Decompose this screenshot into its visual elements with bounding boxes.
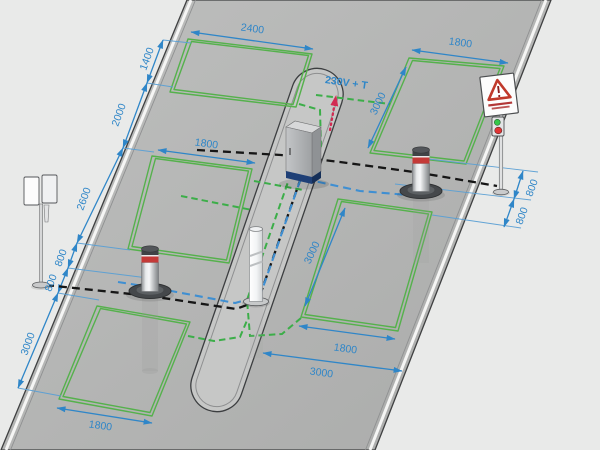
bollard-right-reflector bbox=[413, 156, 430, 158]
bollard-left-stripe bbox=[142, 257, 159, 263]
bollard-left-underground-ghost bbox=[142, 291, 158, 371]
guide-post-ghost bbox=[250, 303, 263, 358]
bollard-installation-diagram: 1400 2000 2600 800 800 3000 2400 1800 18… bbox=[0, 0, 600, 450]
bollard-left-cap bbox=[142, 246, 159, 252]
cabinet-side-face bbox=[312, 127, 321, 178]
signal-green-light bbox=[494, 119, 500, 125]
bollard-right-cap bbox=[413, 147, 430, 153]
sign-base bbox=[494, 189, 509, 195]
control-post-bracket bbox=[44, 205, 49, 222]
bollard-left-reflector bbox=[142, 255, 159, 257]
guide-post-top bbox=[250, 227, 263, 232]
control-post-pole bbox=[40, 204, 43, 285]
signal-red-light bbox=[495, 127, 502, 134]
bollard-left-body bbox=[142, 263, 159, 292]
bollard-left-ghost-bottom bbox=[142, 368, 158, 374]
bollard-right-body bbox=[413, 164, 430, 192]
control-post-panel-right bbox=[42, 175, 57, 203]
bollard-right-underground-ghost bbox=[413, 191, 429, 263]
control-post-panel-left bbox=[24, 177, 39, 205]
bollard-right-stripe bbox=[413, 158, 430, 164]
sign-board-group bbox=[480, 73, 519, 117]
